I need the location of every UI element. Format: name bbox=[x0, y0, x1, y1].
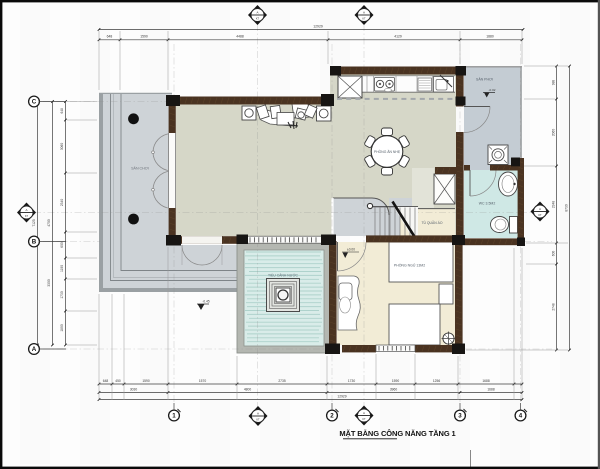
svg-text:648: 648 bbox=[60, 108, 64, 114]
svg-text:A: A bbox=[363, 11, 365, 15]
svg-text:4: 4 bbox=[519, 413, 523, 420]
svg-text:2340: 2340 bbox=[60, 199, 64, 207]
svg-text:KT: KT bbox=[362, 417, 366, 421]
svg-text:8730: 8730 bbox=[564, 204, 568, 212]
svg-text:SÂN PHƠI: SÂN PHƠI bbox=[476, 78, 493, 82]
svg-text:1590: 1590 bbox=[142, 379, 150, 383]
svg-text:1880: 1880 bbox=[486, 35, 494, 39]
svg-text:4129: 4129 bbox=[394, 35, 402, 39]
svg-text:1256: 1256 bbox=[433, 379, 441, 383]
svg-text:4488: 4488 bbox=[236, 35, 244, 39]
svg-text:600: 600 bbox=[551, 251, 555, 257]
svg-text:2: 2 bbox=[330, 413, 334, 420]
svg-text:3960: 3960 bbox=[390, 387, 398, 391]
svg-text:3300: 3300 bbox=[47, 279, 51, 287]
svg-text:WC 3.5M2: WC 3.5M2 bbox=[479, 202, 496, 206]
svg-text:-0.45: -0.45 bbox=[202, 300, 209, 304]
svg-text:KT: KT bbox=[256, 418, 260, 422]
svg-text:MẶT BẰNG CÔNG NĂNG TẦNG 1: MẶT BẰNG CÔNG NĂNG TẦNG 1 bbox=[339, 428, 455, 438]
svg-text:1688: 1688 bbox=[487, 387, 495, 391]
svg-text:KT: KT bbox=[362, 17, 366, 21]
svg-text:3: 3 bbox=[458, 413, 462, 420]
svg-text:4800: 4800 bbox=[244, 387, 252, 391]
svg-text:C: C bbox=[32, 99, 37, 106]
svg-text:450: 450 bbox=[115, 379, 121, 383]
svg-text:648: 648 bbox=[107, 35, 113, 39]
svg-text:3060: 3060 bbox=[60, 143, 64, 151]
svg-text:A: A bbox=[257, 412, 259, 416]
svg-text:A: A bbox=[363, 411, 365, 415]
svg-text:KT: KT bbox=[256, 17, 260, 21]
svg-text:KT: KT bbox=[25, 214, 29, 218]
svg-text:1890: 1890 bbox=[60, 324, 64, 332]
svg-text:12929: 12929 bbox=[313, 24, 323, 28]
svg-text:12929: 12929 bbox=[337, 395, 346, 399]
svg-text:1: 1 bbox=[172, 413, 176, 420]
svg-text:TỦ QUẦN ÁO: TỦ QUẦN ÁO bbox=[421, 220, 442, 225]
svg-text:7125: 7125 bbox=[32, 219, 36, 227]
svg-text:SÂN CHƠI: SÂN CHƠI bbox=[131, 167, 149, 171]
svg-text:PHÒNG ĂN NHẸ: PHÒNG ĂN NHẸ bbox=[374, 149, 401, 154]
svg-text:2348: 2348 bbox=[551, 201, 555, 209]
svg-text:B: B bbox=[32, 239, 37, 246]
svg-text:±0.00: ±0.00 bbox=[347, 248, 355, 252]
svg-text:TIỂU CẢNH NƯỚC: TIỂU CẢNH NƯỚC bbox=[268, 273, 298, 278]
svg-text:1590: 1590 bbox=[392, 379, 400, 383]
svg-text:2748: 2748 bbox=[551, 303, 555, 311]
svg-text:A: A bbox=[25, 208, 27, 212]
svg-text:1590: 1590 bbox=[140, 35, 148, 39]
svg-text:1570: 1570 bbox=[199, 379, 207, 383]
svg-text:2735: 2735 bbox=[278, 379, 286, 383]
svg-text:600: 600 bbox=[60, 242, 64, 248]
svg-text:988: 988 bbox=[551, 80, 555, 86]
svg-text:3030: 3030 bbox=[130, 387, 138, 391]
svg-text:1730: 1730 bbox=[348, 379, 356, 383]
svg-text:PHÒNG NGỦ 13M2: PHÒNG NGỦ 13M2 bbox=[394, 263, 425, 268]
svg-text:1730: 1730 bbox=[60, 291, 64, 299]
svg-text:A: A bbox=[32, 346, 37, 353]
svg-text:-0.02: -0.02 bbox=[488, 88, 495, 92]
svg-text:A: A bbox=[256, 11, 258, 15]
svg-text:2060: 2060 bbox=[551, 129, 555, 137]
svg-text:1190: 1190 bbox=[60, 265, 64, 272]
svg-text:A: A bbox=[539, 207, 541, 211]
svg-text:KT: KT bbox=[538, 213, 542, 217]
svg-text:4700: 4700 bbox=[47, 219, 51, 227]
svg-text:1688: 1688 bbox=[482, 379, 490, 383]
svg-text:648: 648 bbox=[103, 379, 109, 383]
